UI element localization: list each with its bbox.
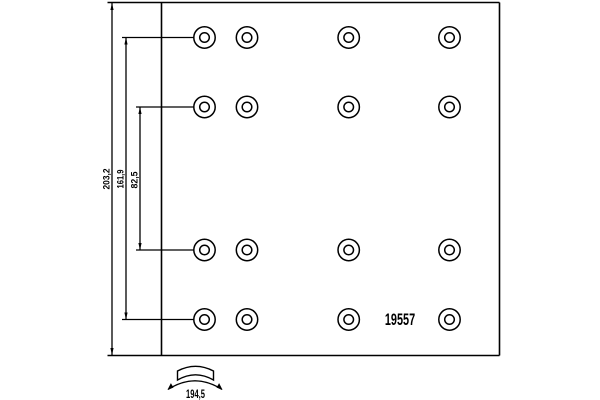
svg-text:203,2: 203,2: [102, 169, 112, 190]
svg-text:82,5: 82,5: [130, 172, 140, 189]
svg-text:161,9: 161,9: [116, 170, 126, 189]
svg-text:194,5: 194,5: [186, 388, 205, 400]
svg-text:19557: 19557: [385, 310, 415, 329]
